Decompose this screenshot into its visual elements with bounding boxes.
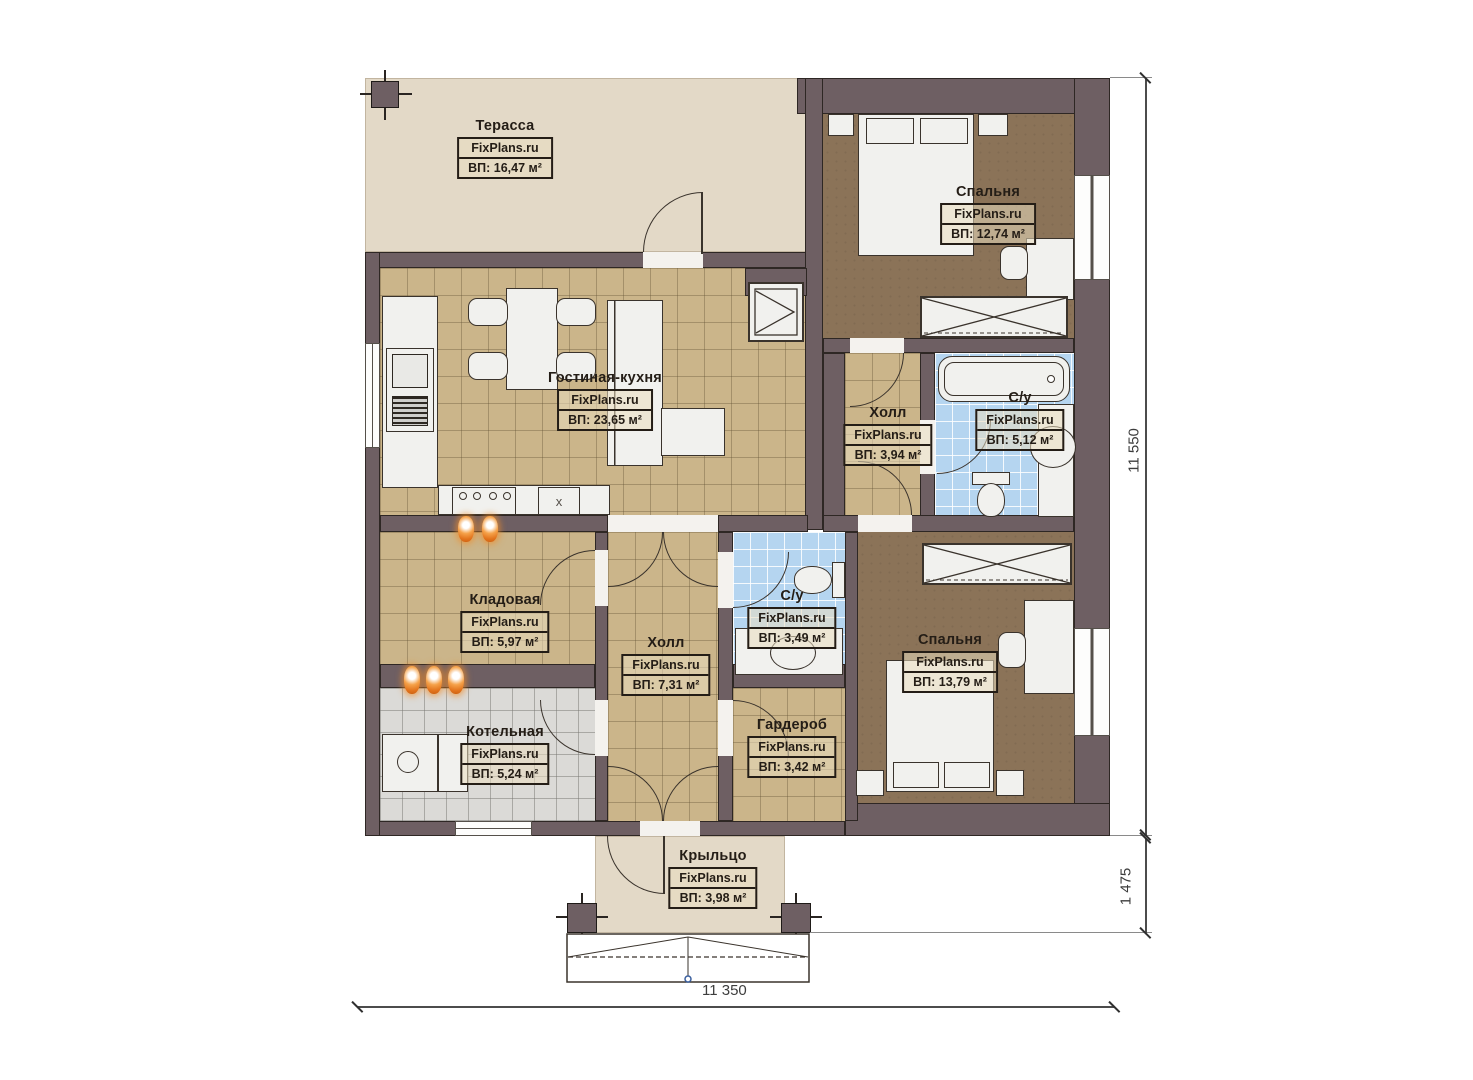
- steps-symbol: [566, 933, 810, 983]
- room-name: Кладовая: [460, 592, 549, 609]
- door-gap: [643, 252, 703, 268]
- pillow-symbol: [866, 118, 914, 144]
- watermark: FixPlans.ru: [942, 205, 1034, 225]
- room-area: ВП: 12,74 м²: [942, 225, 1034, 243]
- room-info-box: FixPlans.ru ВП: 3,98 м²: [668, 867, 757, 909]
- window: [1074, 175, 1110, 280]
- watermark: FixPlans.ru: [845, 426, 930, 446]
- wall: [365, 821, 845, 836]
- door-gap: [850, 338, 904, 353]
- nightstand-symbol: [996, 770, 1024, 796]
- wall: [823, 353, 845, 517]
- room-label-boiler: Котельная FixPlans.ru ВП: 5,24 м²: [460, 724, 549, 785]
- floor-plan: x: [0, 0, 1473, 1080]
- room-label-porch: Крыльцо FixPlans.ru ВП: 3,98 м²: [668, 848, 757, 909]
- radiator-icon: [448, 666, 464, 694]
- room-label-hall2: Холл FixPlans.ru ВП: 7,31 м²: [621, 635, 710, 696]
- pillow-symbol: [920, 118, 968, 144]
- room-info-box: FixPlans.ru ВП: 23,65 м²: [557, 389, 653, 431]
- room-label-bathroom1: С/у FixPlans.ru ВП: 5,12 м²: [975, 390, 1064, 451]
- nightstand-symbol: [856, 770, 884, 796]
- room-name: Терасса: [457, 118, 553, 135]
- watermark: FixPlans.ru: [904, 653, 996, 673]
- wardrobe-symbol: [922, 543, 1072, 585]
- door-gap: [718, 552, 733, 608]
- toilet-symbol: [977, 483, 1005, 517]
- wardrobe-symbol: [920, 296, 1068, 338]
- dimension-right-total: 11 550: [1126, 422, 1143, 480]
- watermark: FixPlans.ru: [459, 139, 551, 159]
- pillow-symbol: [944, 762, 990, 788]
- room-info-box: FixPlans.ru ВП: 7,31 м²: [621, 654, 710, 696]
- chair-symbol: [556, 298, 596, 326]
- room-info-box: FixPlans.ru ВП: 5,97 м²: [460, 611, 549, 653]
- door-gap: [608, 515, 718, 532]
- room-name: Котельная: [460, 724, 549, 741]
- dish-rack: [392, 396, 428, 426]
- room-area: ВП: 3,49 м²: [749, 629, 834, 647]
- wall: [845, 803, 1110, 836]
- room-name: Спальня: [902, 632, 998, 649]
- room-label-storage: Кладовая FixPlans.ru ВП: 5,97 м²: [460, 592, 549, 653]
- room-area: ВП: 23,65 м²: [559, 411, 651, 429]
- watermark: FixPlans.ru: [749, 738, 834, 758]
- room-name: Спальня: [940, 184, 1036, 201]
- door-gap: [595, 550, 608, 606]
- radiator-icon: [458, 516, 474, 542]
- wall: [805, 78, 823, 530]
- room-area: ВП: 5,24 м²: [462, 765, 547, 783]
- room-info-box: FixPlans.ru ВП: 3,94 м²: [843, 424, 932, 466]
- room-label-bedroom2: Спальня FixPlans.ru ВП: 13,79 м²: [902, 632, 998, 693]
- door-leaf: [701, 192, 703, 254]
- watermark: FixPlans.ru: [462, 613, 547, 633]
- extension-line: [810, 932, 1152, 933]
- chair-symbol: [1000, 246, 1028, 280]
- sofa-chaise: [661, 408, 725, 456]
- dimension-line-bottom: [357, 1006, 1115, 1008]
- column-symbol: [371, 81, 399, 108]
- room-info-box: FixPlans.ru ВП: 13,79 м²: [902, 651, 998, 693]
- room-name: Гардероб: [747, 717, 836, 734]
- boiler-unit: [382, 734, 438, 792]
- room-name: Гостиная-кухня: [548, 370, 662, 387]
- chair-symbol: [998, 632, 1026, 668]
- watermark: FixPlans.ru: [623, 656, 708, 676]
- room-label-terrace: Терасса FixPlans.ru ВП: 16,47 м²: [457, 118, 553, 179]
- room-info-box: FixPlans.ru ВП: 12,74 м²: [940, 203, 1036, 245]
- radiator-icon: [426, 666, 442, 694]
- door-gap: [858, 515, 912, 532]
- nightstand-symbol: [978, 114, 1008, 136]
- dimension-right-porch: 1 475: [1118, 864, 1135, 910]
- room-label-hall1: Холл FixPlans.ru ВП: 3,94 м²: [843, 405, 932, 466]
- desk-symbol: [1024, 600, 1074, 694]
- dimension-line-porch: [1145, 838, 1147, 933]
- room-area: ВП: 5,12 м²: [977, 431, 1062, 449]
- dimension-line-right: [1145, 78, 1147, 835]
- door-gap: [718, 700, 733, 756]
- room-label-wardrobe: Гардероб FixPlans.ru ВП: 3,42 м²: [747, 717, 836, 778]
- pillow-symbol: [893, 762, 939, 788]
- room-label-bathroom2: С/у FixPlans.ru ВП: 3,49 м²: [747, 588, 836, 649]
- column-symbol: [781, 903, 811, 933]
- watermark: FixPlans.ru: [977, 411, 1062, 431]
- window: [455, 821, 532, 836]
- watermark: FixPlans.ru: [462, 745, 547, 765]
- chair-symbol: [468, 298, 508, 326]
- room-name: Холл: [843, 405, 932, 422]
- stove-symbol: [452, 487, 516, 515]
- room-area: ВП: 3,42 м²: [749, 758, 834, 776]
- room-area: ВП: 7,31 м²: [623, 676, 708, 694]
- room-info-box: FixPlans.ru ВП: 3,42 м²: [747, 736, 836, 778]
- room-name: Крыльцо: [668, 848, 757, 865]
- wall: [365, 252, 810, 268]
- room-area: ВП: 13,79 м²: [904, 673, 996, 691]
- dimension-bottom-total: 11 350: [702, 982, 747, 999]
- door-leaf: [663, 836, 665, 894]
- window: [1074, 628, 1110, 736]
- room-name: С/у: [975, 390, 1064, 407]
- sink-basin: [392, 354, 428, 388]
- room-area: ВП: 16,47 м²: [459, 159, 551, 177]
- room-area: ВП: 3,94 м²: [845, 446, 930, 464]
- kitchen-sink-label: x: [556, 494, 563, 509]
- radiator-icon: [404, 666, 420, 694]
- wall: [797, 78, 1110, 114]
- room-label-bedroom1: Спальня FixPlans.ru ВП: 12,74 м²: [940, 184, 1036, 245]
- kitchen-sink2: x: [538, 487, 580, 515]
- desk-symbol: [1026, 238, 1074, 300]
- room-area: ВП: 3,98 м²: [670, 889, 755, 907]
- radiator-icon: [482, 516, 498, 542]
- wall: [365, 252, 380, 836]
- room-label-living-kitchen: Гостиная-кухня FixPlans.ru ВП: 23,65 м²: [548, 370, 662, 431]
- room-info-box: FixPlans.ru ВП: 5,24 м²: [460, 743, 549, 785]
- room-info-box: FixPlans.ru ВП: 16,47 м²: [457, 137, 553, 179]
- chair-symbol: [468, 352, 508, 380]
- watermark: FixPlans.ru: [559, 391, 651, 411]
- terrace-floor: [365, 78, 810, 252]
- room-area: ВП: 5,97 м²: [462, 633, 547, 651]
- door-gap: [640, 821, 700, 836]
- room-info-box: FixPlans.ru ВП: 3,49 м²: [747, 607, 836, 649]
- wall: [718, 515, 808, 532]
- watermark: FixPlans.ru: [749, 609, 834, 629]
- nightstand-symbol: [828, 114, 854, 136]
- watermark: FixPlans.ru: [670, 869, 755, 889]
- room-name: Холл: [621, 635, 710, 652]
- window: [365, 343, 380, 448]
- door-gap: [595, 700, 608, 756]
- fireplace-symbol: [748, 282, 804, 342]
- room-info-box: FixPlans.ru ВП: 5,12 м²: [975, 409, 1064, 451]
- column-symbol: [567, 903, 597, 933]
- room-name: С/у: [747, 588, 836, 605]
